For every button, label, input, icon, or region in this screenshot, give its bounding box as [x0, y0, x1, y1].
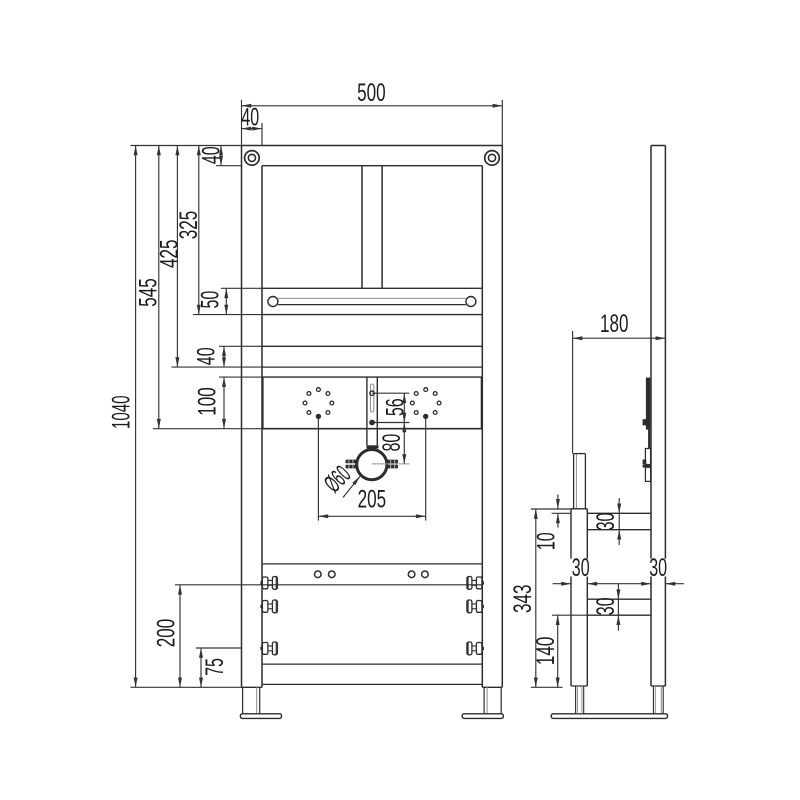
svg-text:80: 80	[378, 434, 406, 452]
svg-text:325: 325	[175, 211, 203, 240]
svg-text:205: 205	[358, 486, 387, 514]
svg-text:1040: 1040	[107, 396, 135, 430]
svg-text:30: 30	[572, 554, 590, 582]
svg-text:30: 30	[592, 513, 620, 531]
svg-text:75: 75	[201, 658, 229, 676]
svg-text:50: 50	[197, 291, 225, 309]
svg-text:180: 180	[600, 310, 629, 338]
svg-text:200: 200	[152, 619, 180, 648]
svg-text:545: 545	[134, 278, 162, 307]
svg-text:343: 343	[509, 585, 537, 614]
svg-text:30: 30	[649, 554, 667, 582]
svg-text:40: 40	[192, 347, 220, 365]
svg-text:40: 40	[197, 146, 225, 164]
svg-text:56: 56	[382, 398, 410, 416]
svg-text:425: 425	[155, 239, 183, 268]
svg-text:140: 140	[532, 637, 560, 666]
svg-text:40: 40	[241, 103, 259, 131]
svg-text:500: 500	[357, 79, 386, 107]
svg-text:30: 30	[592, 597, 620, 615]
svg-text:10: 10	[533, 532, 561, 550]
svg-text:100: 100	[193, 387, 221, 416]
